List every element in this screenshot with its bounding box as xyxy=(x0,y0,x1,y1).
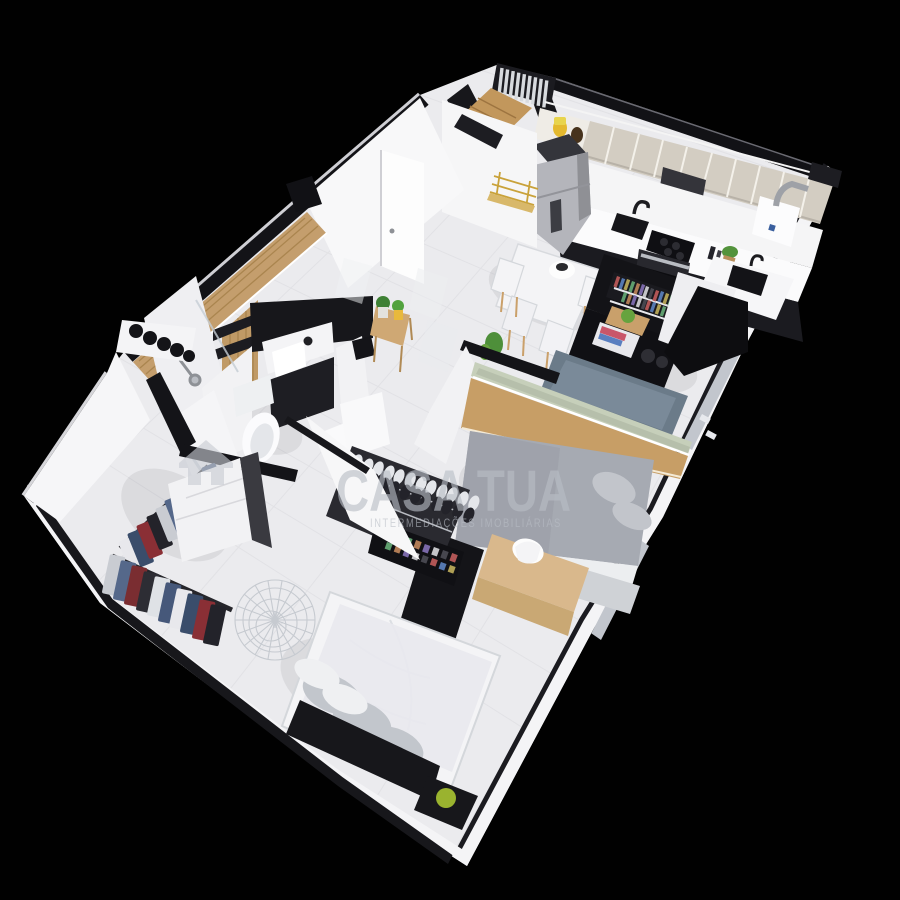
svg-text:CASA TUA: CASA TUA xyxy=(336,459,571,524)
svg-text:INTERMEDIAÇÕES IMOBILIÁRIAS: INTERMEDIAÇÕES IMOBILIÁRIAS xyxy=(370,517,562,530)
